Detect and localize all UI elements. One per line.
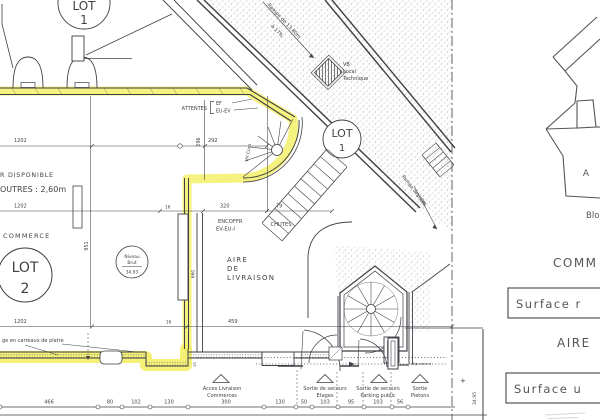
wall-fill	[0, 353, 146, 358]
aire-line1: AIRE	[227, 256, 248, 264]
wall-diag	[247, 88, 295, 117]
dim-1202-bot: 1202	[14, 319, 27, 325]
aire-heading: AIRE	[557, 336, 591, 350]
chain-130b: 130	[275, 400, 285, 406]
lot1-badge: LOT 1	[323, 120, 361, 158]
vb-label-3: Technique	[342, 76, 368, 82]
dim-16-bot: 16	[166, 320, 172, 325]
dim-320: 320	[220, 204, 230, 210]
lot2-label: LOT	[12, 260, 39, 276]
exit2-line1: Sortie de secours	[356, 386, 400, 392]
aire-walls	[178, 178, 352, 366]
wall-diag	[250, 95, 291, 122]
chain-466: 466	[44, 400, 54, 406]
leader-line	[232, 99, 252, 103]
encoffr-line1: ENCOFFR	[218, 219, 243, 225]
door-sill-2	[75, 83, 89, 88]
commerce-heading: COMM	[553, 256, 598, 270]
key-map-letter: A	[583, 169, 590, 179]
chain-130a: 130	[164, 400, 174, 406]
chain-56: 56	[397, 400, 403, 406]
bloc-label: Blo	[586, 211, 599, 221]
door-recess	[262, 352, 294, 366]
stair-newel	[367, 305, 376, 314]
surface-box2-label: Surface u	[514, 382, 582, 396]
niveau-value: 34.93	[126, 270, 139, 276]
key-map	[546, 17, 600, 198]
dim-459: 459	[228, 319, 238, 325]
wall-fill	[146, 362, 188, 366]
dim-951: 951	[84, 241, 90, 250]
chain-103a: 103	[320, 400, 330, 406]
dim-15: 15	[192, 362, 197, 367]
pillar-duct	[72, 36, 84, 61]
surface-box1-label: Surface r	[516, 297, 582, 311]
exit3-line1: Sortie	[413, 386, 428, 392]
exit2-line2: Parking public	[360, 393, 395, 399]
encoffr-line2: EV-EU-I	[216, 227, 235, 233]
hauteur-note-line1: R DISPONIBLE	[0, 172, 54, 179]
wall-left-corner	[2, 4, 13, 68]
dim-16-mid: 16	[165, 205, 171, 210]
aire-line2: DE	[227, 265, 239, 273]
chain-300: 300	[221, 400, 231, 406]
lot1-label: LOT	[331, 127, 352, 140]
dim-660: 660	[191, 270, 197, 279]
illegible-note	[545, 413, 585, 419]
chain-102: 102	[131, 400, 141, 406]
chain-80: 80	[107, 400, 113, 406]
lot1-top-badge: LOT 1	[58, 0, 110, 29]
highlight-top-and-side	[0, 91, 293, 347]
dim-296: 296	[196, 137, 202, 146]
bracket	[211, 102, 215, 114]
dim-292: 292	[208, 138, 218, 144]
hauteur-note-line2: OUTRES : 2,60m	[0, 185, 66, 194]
attentes-euev: EU-EV	[216, 109, 231, 115]
lot1-top-number: 1	[80, 13, 88, 27]
highlighter-boundary	[0, 91, 293, 365]
vb-label-2: Local	[343, 69, 356, 75]
scan-stipple-texture	[207, 0, 452, 337]
chain-103b: 103	[373, 400, 383, 406]
level-value: 34.95	[472, 392, 478, 405]
niveau-line2: Brut	[127, 260, 137, 266]
leader-line	[62, 344, 137, 352]
floorplan-scan-page: LOT 1 Rampe de 13.80m à 17% V	[0, 0, 600, 420]
chain-50: 50	[301, 400, 307, 406]
alignement-label: alignement	[411, 362, 432, 366]
commerce-label: COMMERCE	[3, 232, 50, 240]
exit0-line1: Acces Livraison	[203, 386, 242, 392]
attentes-note: ATTENTES EF EU-EV	[182, 99, 258, 115]
level-plus-mark: +	[460, 377, 466, 385]
lot1-number: 1	[339, 143, 345, 154]
lot1-top-label: LOT	[72, 0, 96, 13]
lot2-area: R DISPONIBLE OUTRES : 2,60m COMMERCE LOT…	[0, 96, 268, 327]
dim-node	[178, 144, 182, 148]
exit0-line2: Commerces	[207, 393, 237, 399]
chain-95: 95	[348, 400, 354, 406]
vb-label-1: VB	[343, 62, 350, 68]
wall-pilaster	[73, 186, 82, 228]
door-sill-1	[21, 83, 35, 88]
exit3-line2: Pietons	[411, 393, 430, 399]
stair-newel	[272, 145, 283, 156]
lot2-number: 2	[21, 281, 30, 297]
exit1-line2: Etages	[316, 393, 333, 399]
attentes-label: ATTENTES	[182, 106, 207, 112]
dim-1202-top: 1202	[14, 138, 27, 144]
exit1-line1: Sortie de secours	[303, 386, 347, 392]
legend-panel: A Blo COMM Surface r AIRE Surface u	[506, 17, 600, 419]
aire-line3: LIVRAISON	[227, 274, 275, 282]
wall-pilaster	[178, 214, 188, 300]
exit-triangles	[213, 375, 428, 383]
dim-1202-mid: 1202	[14, 204, 27, 210]
aire-label: AIRE DE LIVRAISON	[227, 256, 275, 282]
exit-annotations: Acces Livraison Commerces Sortie de seco…	[203, 375, 430, 400]
attentes-ef: EF	[216, 101, 222, 107]
floorplan-svg: LOT 1 Rampe de 13.80m à 17% V	[0, 0, 600, 420]
door-jamb	[388, 338, 398, 369]
chutes-label: CHUTES	[270, 222, 291, 228]
leader-line	[234, 108, 258, 110]
ramp2-arrowhead	[433, 225, 438, 230]
door-leaf	[301, 331, 303, 369]
dim-79: 79	[276, 204, 282, 210]
niveau-line1: Niveau	[124, 254, 139, 260]
doublage-note: ge en carreaux de platre	[2, 338, 64, 344]
wall-niche	[100, 351, 122, 364]
wall-fill	[188, 353, 262, 358]
